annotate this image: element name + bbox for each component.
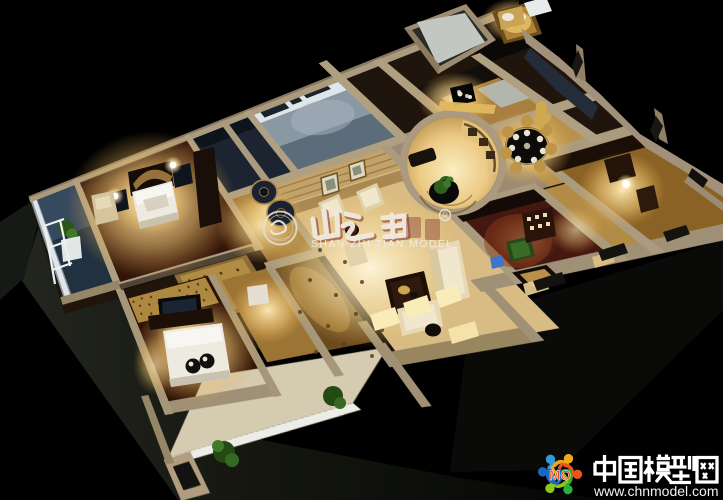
svg-text:MO: MO bbox=[549, 468, 571, 483]
svg-text:www.chnmodel.com: www.chnmodel.com bbox=[593, 483, 719, 499]
